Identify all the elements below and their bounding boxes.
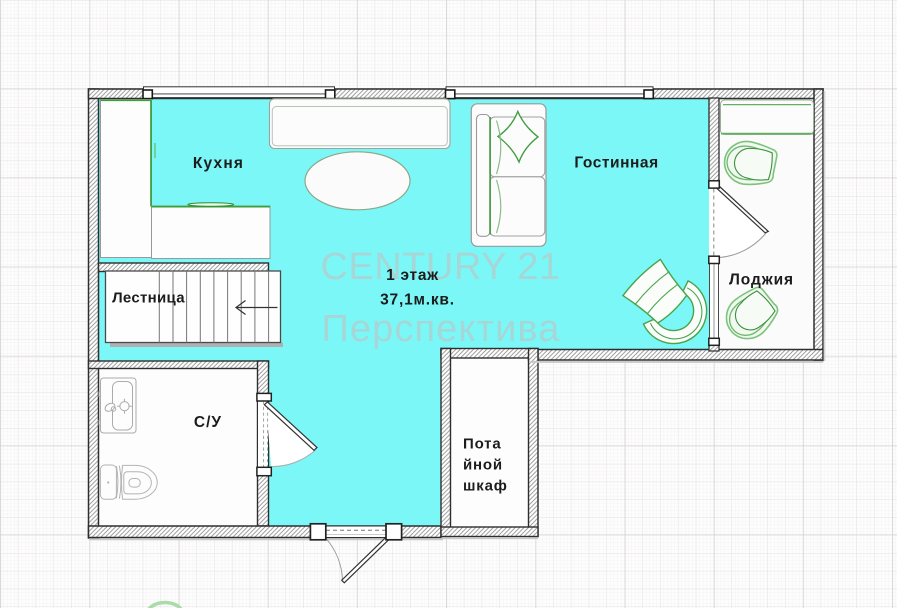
- svg-text:Лоджия: Лоджия: [729, 272, 794, 289]
- svg-text:37,1м.кв.: 37,1м.кв.: [380, 292, 455, 309]
- svg-text:Перспектива: Перспектива: [322, 308, 561, 350]
- svg-text:Лестница: Лестница: [112, 290, 185, 307]
- svg-text:CENTURY 21: CENTURY 21: [320, 246, 560, 288]
- svg-text:С/У: С/У: [194, 414, 222, 431]
- svg-text:Кухня: Кухня: [193, 155, 244, 172]
- svg-text:йной: йной: [463, 457, 503, 474]
- svg-text:Пота: Пота: [463, 436, 501, 453]
- svg-text:шкаф: шкаф: [463, 478, 508, 495]
- svg-text:Гостинная: Гостинная: [574, 155, 658, 172]
- svg-text:1 этаж: 1 этаж: [386, 267, 439, 284]
